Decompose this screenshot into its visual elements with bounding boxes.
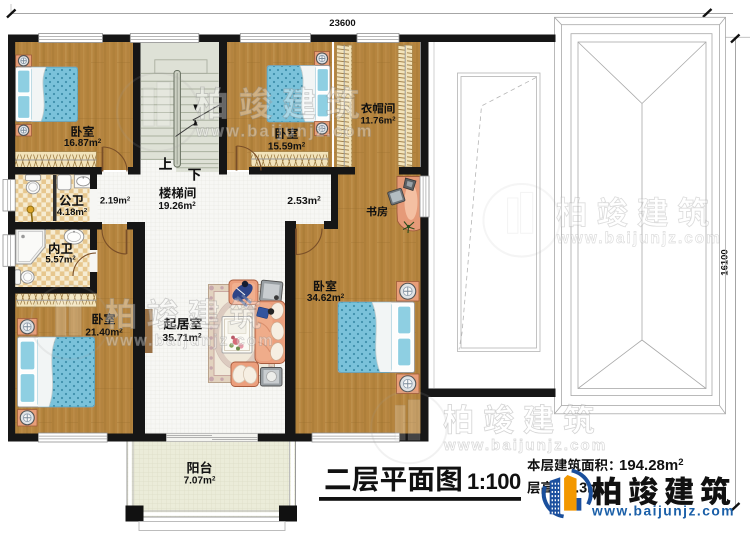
svg-text:16.87m2: 16.87m2: [64, 138, 102, 149]
svg-text:2.53m2: 2.53m2: [287, 195, 321, 207]
svg-text:1:100: 1:100: [467, 469, 521, 494]
svg-text:16100: 16100: [720, 249, 731, 275]
svg-text:www.baijunjz.com: www.baijunjz.com: [105, 332, 275, 349]
svg-text:23600: 23600: [329, 18, 355, 29]
svg-text:34.62m2: 34.62m2: [307, 293, 345, 304]
svg-text:www.baijunjz.com: www.baijunjz.com: [591, 504, 735, 519]
svg-text:194.28m2: 194.28m2: [619, 457, 684, 474]
svg-text:5.57m2: 5.57m2: [45, 255, 76, 266]
svg-text:2.19m2: 2.19m2: [100, 196, 131, 207]
svg-text:7.07m2: 7.07m2: [184, 475, 216, 486]
svg-text:19.26m2: 19.26m2: [158, 201, 196, 212]
svg-text:4.18m2: 4.18m2: [57, 207, 88, 218]
svg-text:www.baijunjz.com: www.baijunjz.com: [556, 230, 722, 247]
svg-text:www.baijunjz.com: www.baijunjz.com: [443, 437, 607, 454]
svg-text:15.59m2: 15.59m2: [268, 141, 306, 152]
svg-text:www.baijunjz.com: www.baijunjz.com: [195, 123, 374, 141]
